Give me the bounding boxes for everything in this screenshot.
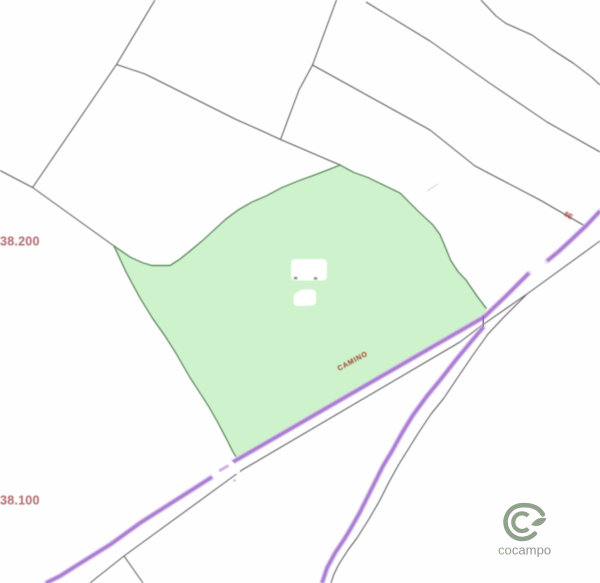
svg-text:38.200: 38.200 [0,235,40,249]
svg-text:cocampo: cocampo [498,543,551,558]
svg-text:38.100: 38.100 [0,494,40,508]
